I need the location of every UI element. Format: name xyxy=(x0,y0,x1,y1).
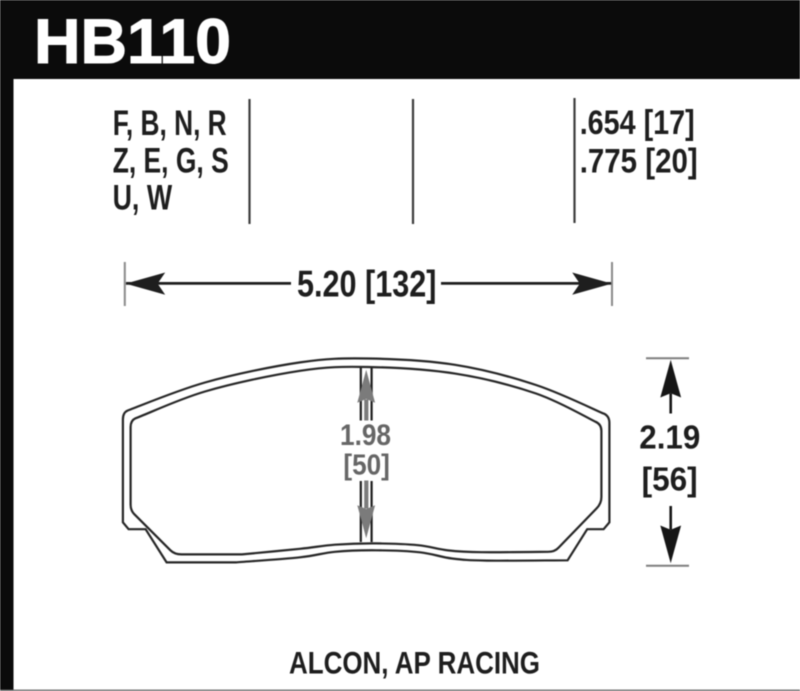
svg-text:[56]: [56] xyxy=(642,460,698,497)
svg-text:2.19: 2.19 xyxy=(639,418,700,455)
svg-text:F, B, N, R: F, B, N, R xyxy=(113,104,227,143)
svg-text:.775 [20]: .775 [20] xyxy=(580,143,698,181)
svg-text:Z, E, G, S: Z, E, G, S xyxy=(113,141,229,180)
svg-text:[50]: [50] xyxy=(343,449,390,481)
svg-text:.654 [17]: .654 [17] xyxy=(580,104,695,142)
svg-text:U, W: U, W xyxy=(113,179,173,218)
svg-text:ALCON, AP RACING: ALCON, AP RACING xyxy=(289,645,540,681)
svg-text:5.20 [132]: 5.20 [132] xyxy=(297,264,437,305)
svg-text:1.98: 1.98 xyxy=(340,419,391,452)
svg-text:HB110: HB110 xyxy=(34,7,231,77)
